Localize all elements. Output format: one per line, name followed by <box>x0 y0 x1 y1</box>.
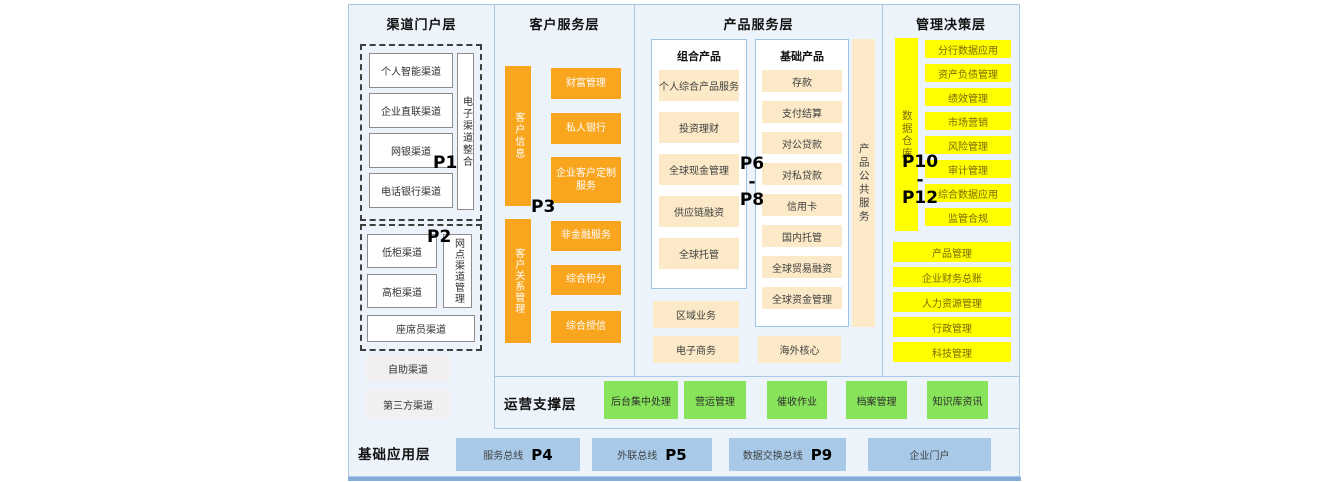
bottom-accent-bar <box>348 477 1021 481</box>
product-box: 存款 <box>762 70 842 92</box>
foundation-layer-panel: 基础应用层 服务总线 P4 外联总线 P5 数据交换总线 P9 企业门户 <box>349 429 1019 476</box>
product-box: 全球资金管理 <box>762 287 842 309</box>
product-box: 国内托管 <box>762 225 842 247</box>
electronic-channel-group: 个人智能渠道 企业直联渠道 网银渠道 电话银行渠道 电子渠道整合 <box>360 44 482 221</box>
overseas-core-box: 海外核心 <box>758 336 841 363</box>
p9-label: P9 <box>811 446 832 464</box>
operation-box: 催收作业 <box>767 381 827 419</box>
bus-label: 数据交换总线 <box>743 447 803 462</box>
combo-products-list: 个人综合产品服务 投资理财 全球现金管理 供应链融资 全球托管 <box>659 70 739 269</box>
customer-service-box: 综合积分 <box>551 265 621 295</box>
product-box: 全球托管 <box>659 238 739 269</box>
crm-vertical-bar: 客户关系管理 <box>505 219 531 343</box>
product-box: 投资理财 <box>659 112 739 143</box>
product-box: 对私贷款 <box>762 163 842 185</box>
channel-box: 企业直联渠道 <box>369 93 453 128</box>
customer-service-box: 企业客户定制服务 <box>551 157 621 203</box>
bus-label: 服务总线 <box>483 447 523 462</box>
product-box: 对公贷款 <box>762 132 842 154</box>
p3-label: P3 <box>531 199 555 217</box>
management-layer-title: 管理决策层 <box>883 5 1019 33</box>
p10-p12-label: P10 - P12 <box>897 153 943 207</box>
channel-layer-title: 渠道门户层 <box>349 5 494 33</box>
management-box: 人力资源管理 <box>893 292 1011 312</box>
foundation-layer-title: 基础应用层 <box>358 443 431 463</box>
p6-p8-label: P6 - P8 <box>732 155 772 209</box>
product-layer-panel: 产品服务层 组合产品 个人综合产品服务 投资理财 全球现金管理 供应链融资 全球… <box>635 5 883 377</box>
p1-label: P1 <box>433 155 457 173</box>
data-exchange-bus-box: 数据交换总线 P9 <box>729 438 846 471</box>
customer-service-box: 财富管理 <box>551 68 621 99</box>
customer-service-box: 综合授信 <box>551 311 621 343</box>
architecture-diagram-canvas: 渠道门户层 个人智能渠道 企业直联渠道 网银渠道 电话银行渠道 电子渠道整合 P… <box>0 0 1333 482</box>
management-box: 市场营销 <box>925 112 1011 130</box>
product-box: 信用卡 <box>762 194 842 216</box>
customer-service-box: 非金融服务 <box>551 221 621 251</box>
customer-layer-title: 客户服务层 <box>495 5 634 33</box>
electronic-channel-integration-vertical-box: 电子渠道整合 <box>457 53 474 210</box>
p-range-dash: - <box>897 171 943 189</box>
basic-products-title: 基础产品 <box>780 48 824 64</box>
product-public-service-vertical-bar: 产品公共服务 <box>852 39 875 327</box>
p12-label: P12 <box>897 189 943 207</box>
channel-box: 高柜渠道 <box>367 274 437 308</box>
management-box: 行政管理 <box>893 317 1011 337</box>
regional-business-box: 区域业务 <box>653 301 739 328</box>
product-box: 全球现金管理 <box>659 154 739 185</box>
combo-products-title: 组合产品 <box>677 48 721 64</box>
management-wide-list: 产品管理 企业财务总账 人力资源管理 行政管理 科技管理 <box>893 242 1011 362</box>
p-range-dash: - <box>732 173 772 191</box>
external-bus-box: 外联总线 P5 <box>592 438 712 471</box>
p6-label: P6 <box>732 155 772 173</box>
channel-box: 个人智能渠道 <box>369 53 453 88</box>
p4-label: P4 <box>531 446 552 464</box>
product-layer-title: 产品服务层 <box>635 5 882 33</box>
customer-info-vertical-bar: 客户信息 <box>505 66 531 206</box>
management-box: 科技管理 <box>893 342 1011 362</box>
management-box: 分行数据应用 <box>925 40 1011 58</box>
enterprise-portal-box: 企业门户 <box>868 438 991 471</box>
self-service-channel-box: 自助渠道 <box>366 354 450 382</box>
channel-box: 电话银行渠道 <box>369 173 453 208</box>
product-box: 供应链融资 <box>659 196 739 227</box>
channel-layer-panel: 渠道门户层 个人智能渠道 企业直联渠道 网银渠道 电话银行渠道 电子渠道整合 P… <box>349 5 495 429</box>
management-box: 产品管理 <box>893 242 1011 262</box>
basic-products-list: 存款 支付结算 对公贷款 对私贷款 信用卡 国内托管 全球贸易融资 全球资金管理 <box>762 70 842 309</box>
electronic-channel-boxes: 个人智能渠道 企业直联渠道 网银渠道 电话银行渠道 <box>369 53 453 208</box>
p8-label: P8 <box>732 191 772 209</box>
service-bus-box: 服务总线 P4 <box>456 438 580 471</box>
diagram-frame: 渠道门户层 个人智能渠道 企业直联渠道 网银渠道 电话银行渠道 电子渠道整合 P… <box>348 4 1020 477</box>
product-box: 个人综合产品服务 <box>659 70 739 101</box>
management-box: 企业财务总账 <box>893 267 1011 287</box>
management-box: 监管合规 <box>925 208 1011 226</box>
agent-channel-box: 座席员渠道 <box>367 315 475 342</box>
management-box: 绩效管理 <box>925 88 1011 106</box>
operation-layer-panel: 运营支撑层 后台集中处理 营运管理 催收作业 档案管理 知识库资讯 <box>495 377 1019 429</box>
management-box: 资产负债管理 <box>925 64 1011 82</box>
operation-box: 知识库资讯 <box>927 381 988 419</box>
customer-service-box: 私人银行 <box>551 113 621 144</box>
p10-label: P10 <box>897 153 943 171</box>
operation-box: 营运管理 <box>684 381 746 419</box>
operation-box: 档案管理 <box>846 381 907 419</box>
product-box: 支付结算 <box>762 101 842 123</box>
product-box: 全球贸易融资 <box>762 256 842 278</box>
third-party-channel-box: 第三方渠道 <box>366 390 450 418</box>
bus-label: 外联总线 <box>617 447 657 462</box>
customer-layer-panel: 客户服务层 客户信息 财富管理 私人银行 企业客户定制服务 P3 客户关系管理 … <box>495 5 635 377</box>
branch-channel-group: 低柜渠道 高柜渠道 网点渠道管理 座席员渠道 <box>360 224 482 351</box>
management-layer-panel: 管理决策层 数据仓库 分行数据应用 资产负债管理 绩效管理 市场营销 风险管理 … <box>883 5 1019 377</box>
operation-layer-title: 运营支撑层 <box>504 393 577 413</box>
ecommerce-box: 电子商务 <box>653 336 739 363</box>
operation-box: 后台集中处理 <box>604 381 678 419</box>
p5-label: P5 <box>665 446 686 464</box>
p2-label: P2 <box>427 229 451 247</box>
bus-label: 企业门户 <box>910 447 950 462</box>
